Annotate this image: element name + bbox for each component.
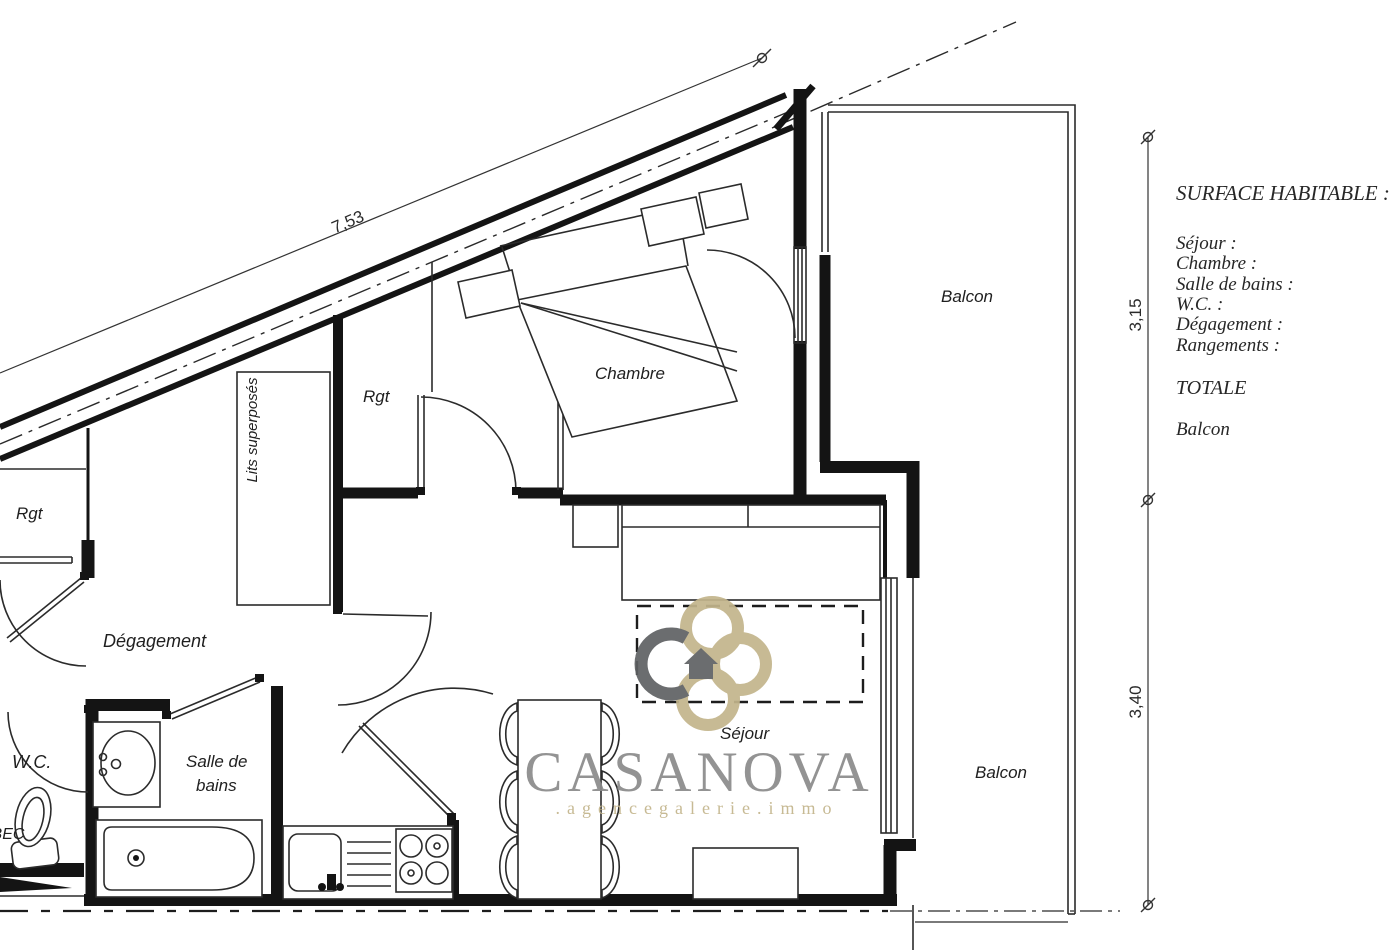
- pillow: [641, 197, 704, 246]
- dim-3-40: 3,40: [1126, 685, 1145, 718]
- kitchen-counter: [283, 826, 453, 899]
- chair: [500, 771, 517, 833]
- watermark-tagline: .agencegalerie.immo: [556, 798, 839, 818]
- surface-legend: SURFACE HABITABLE : Séjour : Chambre : S…: [1175, 181, 1390, 440]
- bathroom-fixtures: [93, 722, 262, 897]
- legend-item-chambre: Chambre :: [1176, 253, 1257, 274]
- pillow: [699, 184, 748, 228]
- label-chambre: Chambre: [595, 364, 665, 383]
- watermark-brand: CASANOVA: [524, 741, 873, 804]
- sofa: [573, 505, 880, 600]
- sideboard: [693, 848, 798, 899]
- label-salle-de-bains-2: bains: [196, 776, 237, 795]
- legend-item-rangements: Rangements :: [1175, 335, 1280, 356]
- chair: [602, 836, 619, 898]
- legend-title: SURFACE HABITABLE :: [1176, 181, 1390, 205]
- legend-item-sejour: Séjour :: [1176, 233, 1237, 254]
- legend-item-salle-de-bains: Salle de bains :: [1176, 274, 1294, 295]
- floor-plan-svg: Chambre Séjour Dégagement W.C. Salle de …: [0, 0, 1400, 950]
- chair: [500, 836, 517, 898]
- double-bed: [458, 184, 748, 437]
- chair: [500, 703, 517, 765]
- legend-item-degagement: Dégagement :: [1175, 314, 1283, 335]
- label-lits-superposes: Lits superposés: [244, 377, 261, 483]
- label-bec-partial: BEC: [0, 826, 25, 843]
- label-balcon-upper: Balcon: [941, 287, 993, 306]
- casanova-logo-icon: [641, 602, 766, 725]
- label-salle-de-bains-1: Salle de: [186, 752, 247, 771]
- nightstand: [458, 270, 520, 318]
- label-balcon-lower: Balcon: [975, 763, 1027, 782]
- label-rgt-left: Rgt: [16, 504, 44, 523]
- legend-balcon: Balcon: [1176, 419, 1230, 440]
- side-table: [573, 505, 618, 547]
- dim-7-53: 7,53: [329, 207, 367, 237]
- legend-item-wc: W.C. :: [1176, 294, 1223, 315]
- floor-plan-page: Chambre Séjour Dégagement W.C. Salle de …: [0, 0, 1400, 950]
- label-degagement: Dégagement: [103, 631, 207, 651]
- label-rgt-top: Rgt: [363, 387, 391, 406]
- label-wc: W.C.: [12, 752, 51, 772]
- legend-totale: TOTALE: [1176, 377, 1246, 399]
- dim-3-15: 3,15: [1126, 298, 1145, 331]
